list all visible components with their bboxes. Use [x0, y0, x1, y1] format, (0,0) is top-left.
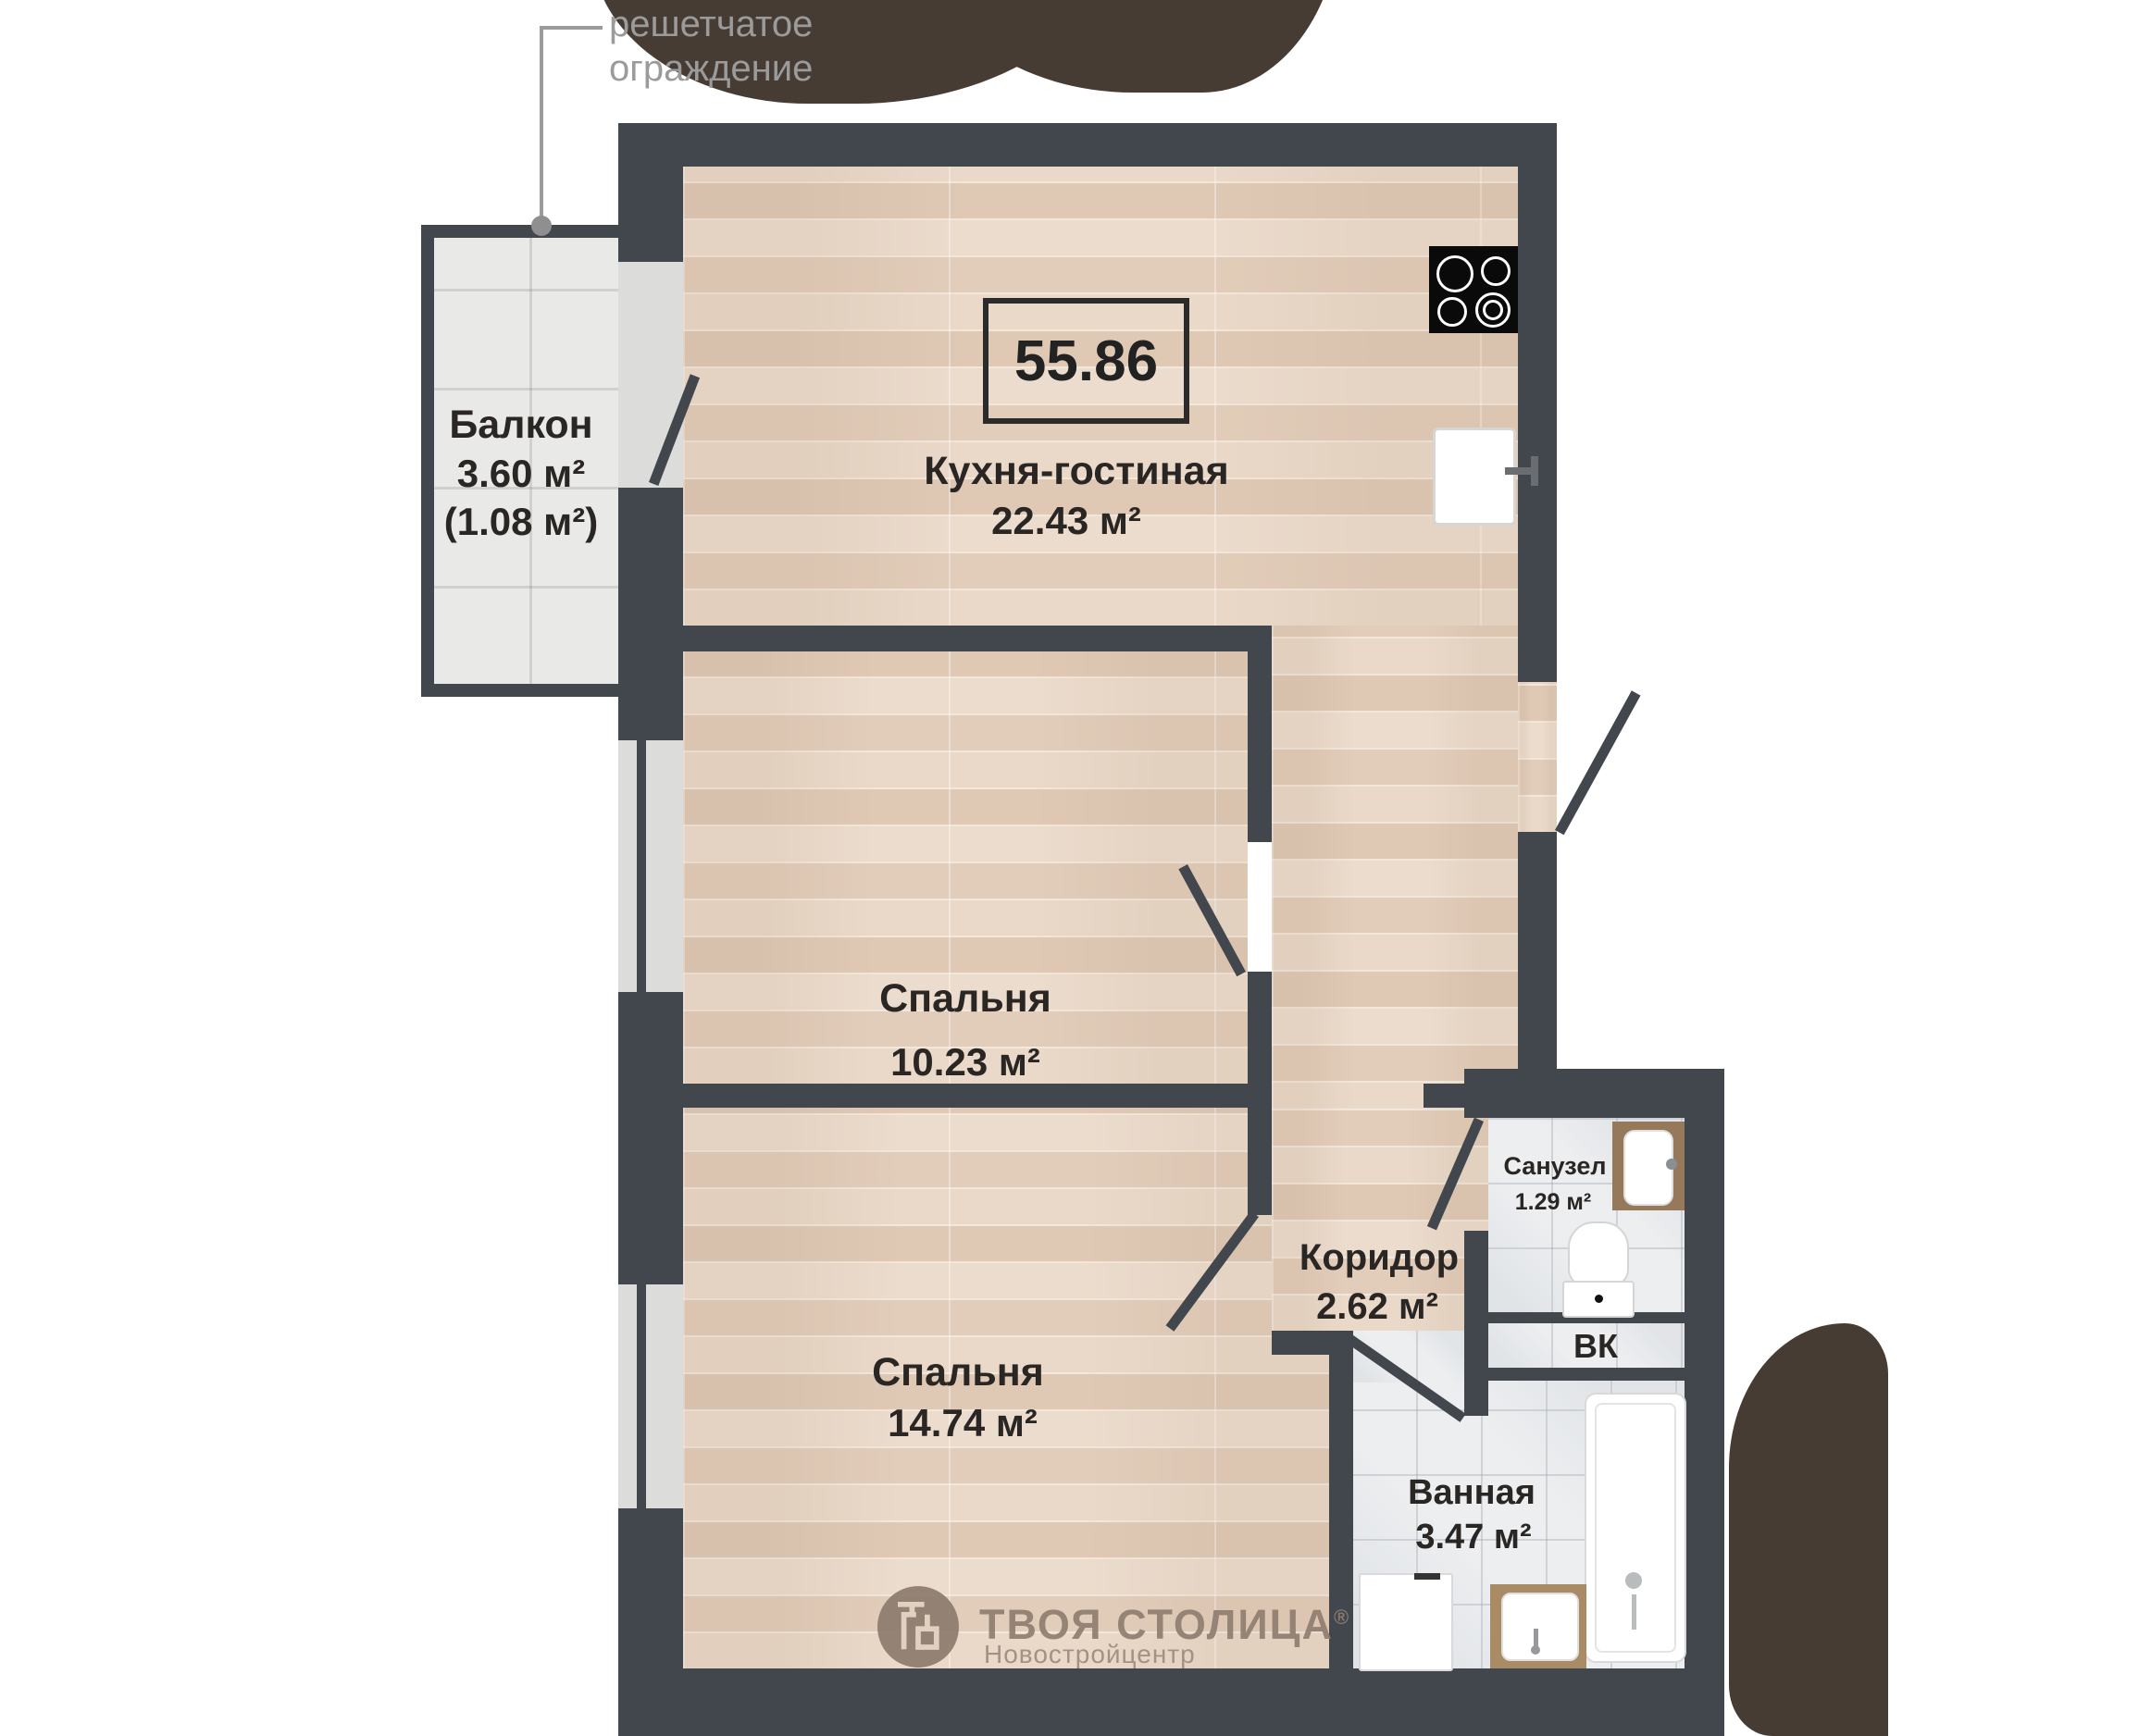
bedroom1-area: 10.23 м² [780, 1040, 1150, 1085]
wall-right-outer [1685, 1069, 1724, 1736]
kitchen-name: Кухня-гостиная [799, 449, 1354, 494]
wc-vanity-icon [1612, 1122, 1685, 1210]
bedroom2-window [618, 1284, 683, 1508]
leader-line-vertical [540, 26, 543, 226]
bedroom1-window-glass [637, 740, 646, 992]
bathroom-vanity-icon [1490, 1584, 1586, 1668]
bedroom2-name: Спальня [727, 1350, 1189, 1395]
corridor-name: Коридор [1240, 1237, 1518, 1279]
bedroom2-area: 14.74 м² [777, 1401, 1148, 1445]
total-area-value: 55.86 [1014, 329, 1158, 394]
wall-left-a [618, 123, 683, 262]
wc-area: 1.29 м² [1488, 1189, 1618, 1216]
washing-machine-icon [1359, 1573, 1453, 1671]
wall-corridor-wc [1424, 1084, 1488, 1108]
wall-right-a [1518, 123, 1557, 682]
corridor-area: 2.62 м² [1238, 1286, 1516, 1328]
bathroom-name: Ванная [1333, 1473, 1610, 1513]
wall-bedroom1-top [683, 626, 1272, 651]
floor-plan: решетчатое ограждение [0, 0, 2151, 1736]
bedroom1-name: Спальня [734, 976, 1197, 1022]
entry-threshold [1518, 682, 1557, 832]
wall-right-b [1518, 832, 1557, 1069]
balcony-area: 3.60 м² [382, 452, 660, 496]
wc-name: Санузел [1490, 1152, 1620, 1181]
kitchen-sink-icon [1433, 428, 1516, 526]
kitchen-right-floor [1272, 626, 1518, 1118]
leader-dot [531, 216, 552, 236]
balcony-name: Балкон [382, 403, 660, 448]
total-area-box: 55.86 [983, 298, 1189, 424]
balcony-window [618, 262, 683, 377]
site-shape-bottom-right [1729, 1323, 1888, 1736]
bedroom2-window-glass [637, 1284, 646, 1508]
wall-corridor-bottom-stub [1272, 1331, 1353, 1355]
entry-door-leaf [1555, 690, 1641, 835]
brand-reg-mark: ® [1334, 1606, 1350, 1629]
toilet-icon [1568, 1221, 1629, 1286]
wall-bottom [618, 1668, 1724, 1736]
bedroom1-window [618, 740, 683, 992]
toilet-tank-icon [1562, 1281, 1635, 1318]
stove-icon [1429, 246, 1518, 333]
wall-top [628, 123, 1557, 167]
brand-subtitle: Новостройцентр [984, 1640, 1196, 1669]
balcony-rail-top [421, 225, 618, 238]
wall-left-c [618, 992, 683, 1284]
wall-shaft-bottom [1464, 1368, 1685, 1381]
wall-bedrooms-divider [683, 1084, 1272, 1108]
wall-bedroom1-right-upper [1248, 651, 1272, 842]
leader-line-horizontal [540, 26, 603, 30]
balcony-rail-bottom [421, 684, 618, 697]
kitchen-faucet-base-icon [1531, 456, 1538, 486]
balcony-area2: (1.08 м²) [382, 500, 660, 544]
annotation-railing: решетчатое ограждение [609, 2, 813, 91]
brand-logo-icon [877, 1586, 959, 1668]
bathroom-area: 3.47 м² [1335, 1518, 1612, 1557]
shaft-name: ВК [1531, 1327, 1660, 1366]
kitchen-area: 22.43 м² [881, 499, 1251, 543]
